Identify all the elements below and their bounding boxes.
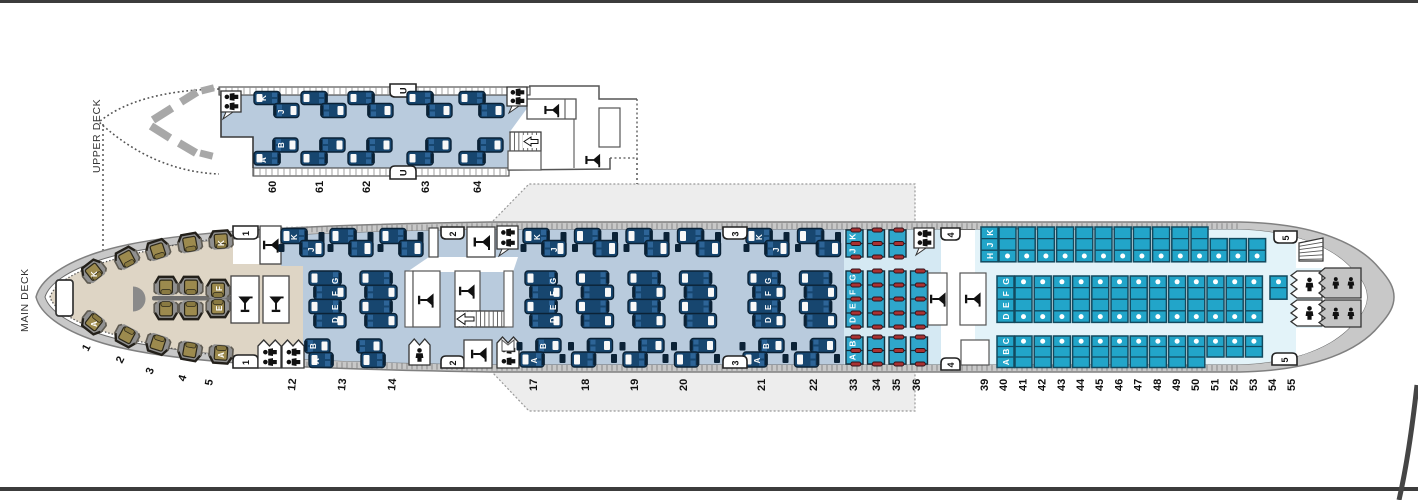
svg-text:J: J (985, 242, 995, 247)
svg-text:K: K (90, 271, 99, 277)
svg-text:H: H (985, 253, 995, 259)
svg-text:5: 5 (1281, 235, 1291, 240)
svg-text:2: 2 (114, 355, 127, 366)
svg-text:U: U (399, 170, 409, 177)
svg-text:5: 5 (203, 378, 216, 386)
svg-text:41: 41 (1017, 379, 1029, 391)
svg-text:MAIN DECK: MAIN DECK (19, 268, 31, 332)
svg-text:48: 48 (1152, 379, 1164, 391)
svg-text:G: G (549, 278, 558, 284)
svg-text:61: 61 (314, 181, 326, 193)
svg-text:4: 4 (946, 232, 956, 237)
svg-text:K: K (985, 229, 995, 236)
svg-text:4: 4 (946, 362, 956, 367)
svg-text:J: J (550, 248, 559, 252)
svg-text:J: J (848, 248, 858, 253)
svg-text:K: K (259, 95, 268, 101)
svg-text:E: E (331, 304, 340, 310)
svg-text:46: 46 (1113, 379, 1125, 391)
svg-text:51: 51 (1209, 379, 1221, 391)
svg-text:B: B (277, 142, 286, 148)
svg-text:A: A (530, 358, 539, 364)
svg-text:A: A (217, 352, 226, 358)
svg-text:63: 63 (420, 181, 432, 193)
svg-text:42: 42 (1037, 379, 1049, 391)
svg-text:K: K (217, 240, 226, 246)
svg-text:3: 3 (144, 366, 157, 376)
svg-text:5: 5 (1280, 357, 1290, 362)
svg-text:B: B (762, 343, 771, 349)
svg-text:34: 34 (871, 378, 883, 391)
svg-text:14: 14 (386, 377, 399, 391)
svg-text:J: J (277, 110, 286, 114)
svg-text:A: A (90, 321, 99, 327)
svg-text:A: A (753, 358, 762, 364)
svg-text:45: 45 (1094, 379, 1106, 391)
svg-text:C: C (1001, 338, 1011, 344)
svg-text:E: E (549, 304, 558, 310)
svg-text:K: K (533, 234, 542, 240)
svg-text:E: E (848, 303, 858, 309)
svg-text:50: 50 (1190, 379, 1202, 391)
svg-text:44: 44 (1075, 378, 1087, 391)
svg-text:D: D (331, 317, 340, 323)
svg-text:22: 22 (808, 379, 820, 391)
svg-text:A: A (312, 358, 321, 364)
svg-text:A: A (259, 157, 268, 163)
svg-text:B: B (848, 341, 858, 347)
svg-text:E: E (764, 304, 773, 310)
svg-text:B: B (1001, 349, 1011, 355)
svg-text:F: F (215, 286, 224, 291)
svg-text:K: K (848, 233, 858, 240)
svg-text:40: 40 (998, 379, 1010, 391)
svg-text:G: G (331, 278, 340, 284)
svg-text:E: E (1001, 302, 1011, 308)
svg-text:47: 47 (1133, 379, 1145, 391)
svg-text:G: G (848, 274, 858, 281)
svg-text:17: 17 (528, 379, 540, 391)
svg-text:J: J (772, 248, 781, 252)
svg-text:21: 21 (756, 379, 768, 391)
svg-text:G: G (764, 278, 773, 284)
svg-text:F: F (331, 291, 340, 296)
svg-text:UPPER DECK: UPPER DECK (91, 99, 103, 173)
svg-text:43: 43 (1056, 379, 1068, 391)
svg-text:60: 60 (267, 181, 279, 193)
svg-text:64: 64 (472, 180, 484, 193)
svg-text:52: 52 (1229, 379, 1241, 391)
svg-text:54: 54 (1267, 378, 1279, 391)
svg-text:K: K (755, 234, 764, 240)
svg-text:4: 4 (176, 373, 189, 383)
svg-text:B: B (309, 343, 318, 349)
svg-text:F: F (549, 291, 558, 296)
svg-text:39: 39 (979, 379, 991, 391)
svg-text:D: D (549, 317, 558, 323)
svg-text:J: J (307, 248, 316, 252)
svg-text:D: D (764, 317, 773, 323)
svg-text:1: 1 (80, 342, 93, 353)
svg-text:B: B (539, 343, 548, 349)
svg-text:D: D (848, 317, 858, 323)
svg-text:55: 55 (1286, 379, 1298, 391)
svg-text:33: 33 (848, 379, 860, 391)
svg-text:3: 3 (731, 231, 741, 236)
svg-text:1: 1 (241, 360, 251, 365)
svg-text:F: F (764, 291, 773, 296)
svg-text:35: 35 (891, 379, 903, 391)
svg-text:E: E (215, 305, 224, 311)
svg-text:K: K (290, 234, 299, 240)
svg-text:A: A (848, 354, 858, 360)
svg-text:20: 20 (678, 379, 690, 391)
svg-text:62: 62 (361, 181, 373, 193)
svg-text:53: 53 (1248, 379, 1260, 391)
svg-text:1: 1 (241, 231, 251, 236)
svg-text:G: G (1001, 278, 1011, 285)
svg-text:3: 3 (731, 360, 741, 365)
svg-text:36: 36 (911, 379, 923, 391)
svg-text:13: 13 (336, 378, 349, 391)
svg-text:49: 49 (1171, 379, 1183, 391)
svg-text:18: 18 (580, 379, 592, 391)
svg-text:12: 12 (286, 378, 299, 391)
svg-text:2: 2 (448, 360, 458, 365)
svg-text:A: A (1001, 359, 1011, 365)
svg-text:D: D (1001, 313, 1011, 319)
svg-text:2: 2 (448, 231, 458, 236)
svg-text:F: F (848, 290, 858, 295)
svg-text:F: F (1001, 291, 1011, 296)
svg-text:19: 19 (629, 379, 641, 391)
